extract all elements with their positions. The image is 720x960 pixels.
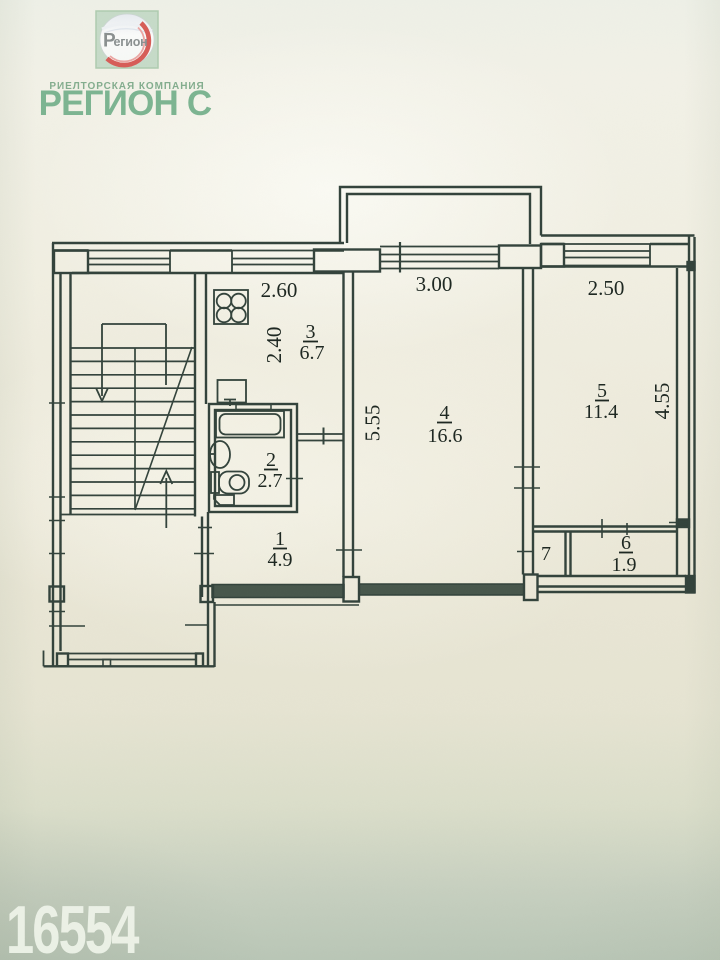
svg-text:3.00: 3.00 xyxy=(416,272,453,296)
svg-text:2.60: 2.60 xyxy=(261,278,298,302)
svg-text:16.6: 16.6 xyxy=(428,425,463,447)
svg-text:1.9: 1.9 xyxy=(612,554,637,576)
svg-text:11.4: 11.4 xyxy=(584,401,618,423)
svg-text:3: 3 xyxy=(306,321,316,343)
svg-text:2.7: 2.7 xyxy=(258,470,283,492)
svg-text:7: 7 xyxy=(541,543,551,565)
svg-text:5: 5 xyxy=(597,380,607,402)
svg-text:1: 1 xyxy=(275,528,285,550)
svg-text:2: 2 xyxy=(266,449,276,471)
svg-text:2.50: 2.50 xyxy=(588,276,625,300)
svg-text:4: 4 xyxy=(440,402,450,424)
svg-text:РЕГИОН С: РЕГИОН С xyxy=(39,84,212,123)
svg-text:2.40: 2.40 xyxy=(262,327,286,364)
svg-text:4.9: 4.9 xyxy=(268,549,293,571)
svg-text:5.55: 5.55 xyxy=(361,405,385,442)
svg-text:4.55: 4.55 xyxy=(650,383,674,420)
svg-text:16554: 16554 xyxy=(6,892,140,960)
svg-text:егион: егион xyxy=(114,35,148,49)
svg-text:6.7: 6.7 xyxy=(300,342,325,364)
svg-text:6: 6 xyxy=(621,532,631,554)
